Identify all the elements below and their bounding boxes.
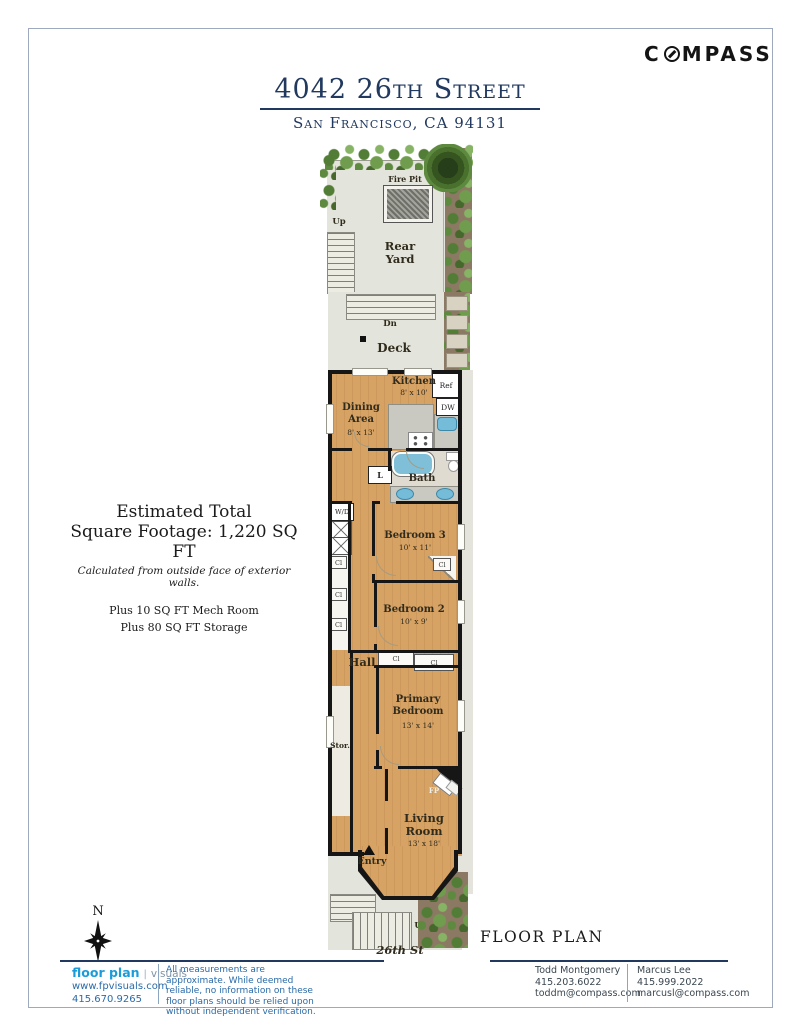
footer-rule-right: [490, 960, 728, 962]
left-hedge: [320, 150, 336, 214]
rear-yard-stairs: [327, 232, 355, 294]
fpvisuals-logo-primary: floor plan: [72, 965, 140, 980]
deck-label: Deck: [368, 342, 420, 356]
footer-rule-left: [60, 960, 384, 962]
wall-segment: [374, 665, 460, 668]
kitchen-dim: 8' x 10': [386, 389, 442, 398]
primary-dim: 13' x 14': [382, 722, 454, 731]
closet-label: Cl: [392, 655, 399, 663]
bath-sink-left: [396, 488, 414, 500]
agent-email: toddm@compass.com: [535, 988, 641, 1000]
wall-segment: [376, 668, 379, 734]
dining-label: Dining Area: [330, 402, 392, 425]
agent-name: Marcus Lee: [637, 965, 749, 977]
planter-box: [446, 334, 468, 349]
primary-label: Primary Bedroom: [382, 694, 454, 717]
closet: Cl: [414, 654, 454, 671]
page-subtitle: San Francisco, CA 94131: [0, 114, 800, 132]
tree-icon: [424, 144, 472, 192]
dining-dim: 8' x 13': [330, 429, 392, 438]
fireplace-label: FP: [424, 787, 444, 795]
compass-logo-left: C: [644, 42, 662, 66]
wall-segment: [350, 650, 460, 653]
estimate-line2: Square Footage: 1,220 SQ FT: [70, 522, 298, 562]
planter-box: [446, 353, 468, 368]
compass-rose-icon: [76, 918, 120, 964]
dw-label: DW: [441, 403, 455, 412]
entry-label: Entry: [350, 857, 394, 868]
wall-segment: [385, 769, 388, 801]
closet-label: Cl: [438, 561, 445, 569]
closet: Cl: [330, 618, 347, 631]
header: 4042 26th Street San Francisco, CA 94131: [0, 74, 800, 132]
agent-phone: 415.999.2022: [637, 977, 749, 989]
agent-divider: [627, 964, 628, 1002]
closet-label: Cl: [335, 591, 342, 599]
wall-segment: [328, 370, 462, 374]
estimate-line1: Estimated Total: [70, 502, 298, 522]
window: [404, 368, 432, 376]
wall-segment: [398, 766, 458, 769]
deck-stairs: [346, 294, 436, 320]
compass-o-icon: [664, 46, 680, 62]
closet-label: Cl: [335, 621, 342, 629]
agent-email: marcusl@compass.com: [637, 988, 749, 1000]
compass-logo: C MPASS: [644, 42, 773, 66]
bedroom2-label: Bedroom 2: [374, 604, 454, 616]
window: [457, 600, 465, 624]
disclaimer: All measurements are approximate. While …: [166, 965, 324, 1018]
hall-label: Hall: [342, 656, 382, 669]
window: [457, 524, 465, 550]
planter-box: [446, 296, 468, 311]
deck-stairs-down-label: Dn: [376, 320, 404, 330]
storage-label: Stor.: [326, 742, 354, 751]
estimate-plus1: Plus 10 SQ FT Mech Room: [70, 603, 298, 618]
closet-label: Cl: [335, 559, 342, 567]
agent-todd: Todd Montgomery 415.203.6022 toddm@compa…: [535, 965, 641, 1000]
wall-segment: [348, 501, 351, 653]
bath-sink-right: [436, 488, 454, 500]
fpvisuals-phone: 415.670.9265: [72, 994, 142, 1005]
window: [457, 700, 465, 732]
square-footage-block: Estimated Total Square Footage: 1,220 SQ…: [70, 502, 298, 635]
floor-plan-page: C MPASS 4042 26th Street San Francisco, …: [0, 0, 800, 1035]
wall-segment: [328, 448, 352, 451]
kitchen-label: Kitchen: [386, 376, 442, 388]
fpvisuals-website: www.fpvisuals.com: [72, 981, 168, 992]
linen-label: L: [377, 470, 383, 480]
bedroom3-label: Bedroom 3: [374, 530, 456, 542]
footer-divider: [158, 964, 159, 1004]
spacer: [70, 589, 298, 601]
agent-name: Todd Montgomery: [535, 965, 641, 977]
closet: Cl: [330, 588, 347, 601]
wall-segment: [385, 828, 388, 854]
estimate-plus2: Plus 80 SQ FT Storage: [70, 620, 298, 635]
closet: Cl: [330, 556, 347, 569]
deck-post: [360, 336, 366, 342]
wall-segment: [350, 650, 353, 854]
fire-pit-label: Fire Pit: [362, 175, 448, 184]
stove: [408, 432, 433, 449]
street-label: 26th St: [352, 944, 448, 957]
estimate-note: Calculated from outside face of exterior…: [70, 565, 298, 589]
wall-segment: [396, 501, 458, 504]
entry-arrow-icon: [363, 845, 375, 855]
bath-label: Bath: [394, 473, 450, 485]
wall-segment: [376, 750, 379, 769]
bedroom2-dim: 10' x 9': [374, 618, 454, 627]
dishwasher: DW: [436, 398, 460, 416]
page-title: 4042 26th Street: [260, 74, 539, 110]
wall-segment: [388, 451, 391, 471]
bedroom3-dim: 10' x 11': [374, 544, 456, 553]
wd-label: W/D: [335, 508, 349, 516]
kitchen-sink: [437, 417, 457, 431]
compass-needle-icon: [668, 50, 676, 58]
storage-strip: [330, 686, 350, 816]
agent-marcus: Marcus Lee 415.999.2022 marcusl@compass.…: [637, 965, 749, 1000]
living-label: Living Room: [390, 812, 458, 838]
planter-box: [446, 315, 468, 330]
deck-door: [352, 368, 388, 376]
fire-pit: [384, 186, 432, 222]
floor-plan-caption: FLOOR PLAN: [480, 928, 604, 946]
logo-divider: |: [144, 969, 147, 980]
agent-phone: 415.203.6022: [535, 977, 641, 989]
rear-yard-label: Rear Yard: [374, 240, 426, 266]
wall-segment: [328, 374, 332, 856]
rear-stairs-up-label: Up: [324, 218, 354, 228]
wall-segment: [372, 580, 460, 583]
compass-logo-right: MPASS: [682, 42, 773, 66]
north-label: N: [84, 904, 112, 919]
living-dim: 13' x 18': [390, 840, 458, 849]
closet: Cl: [433, 558, 451, 571]
